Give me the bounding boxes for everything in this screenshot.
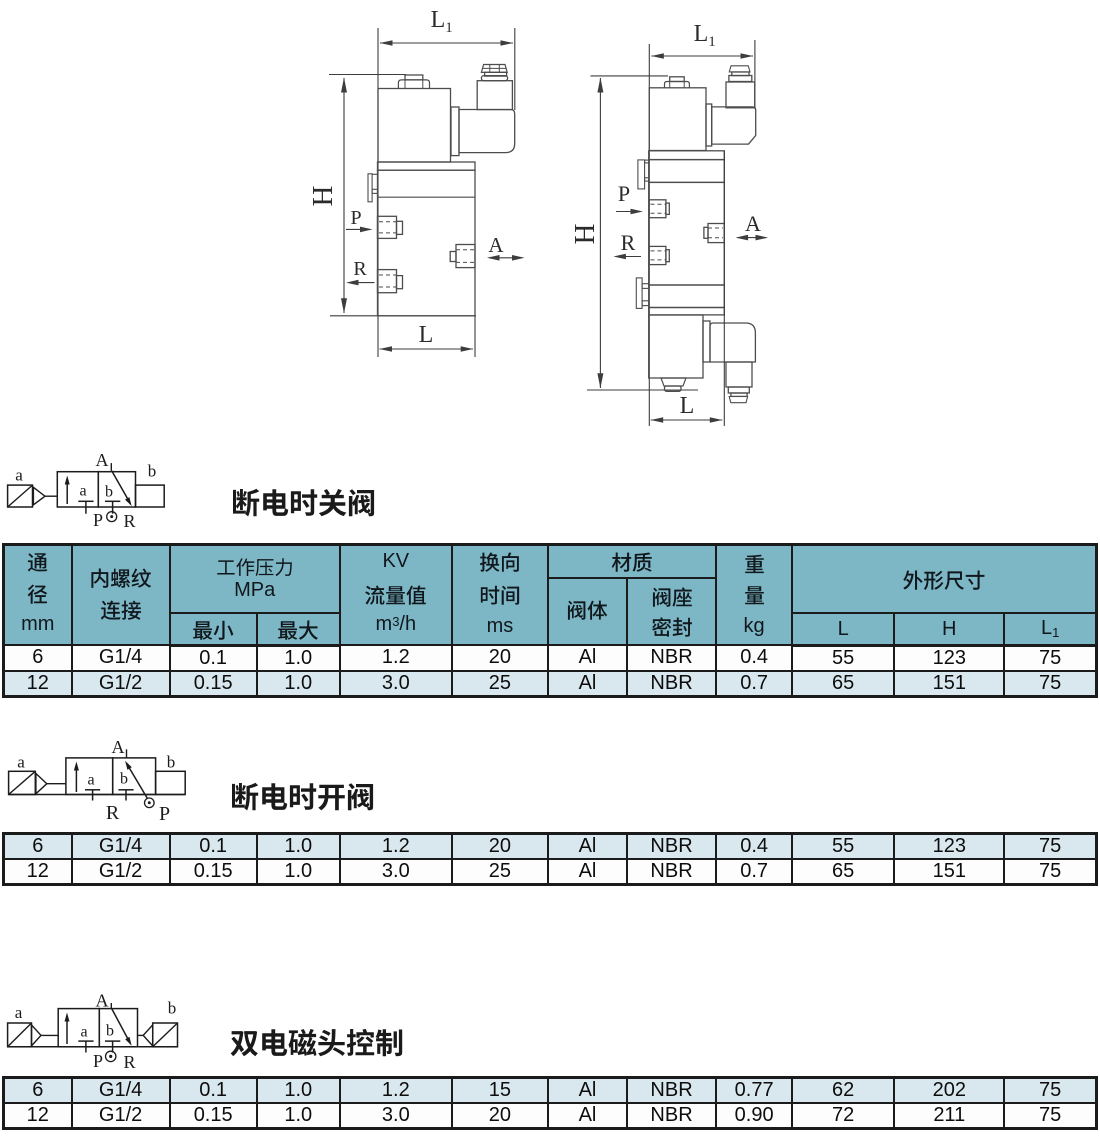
svg-text:A: A (96, 991, 109, 1011)
svg-text:P: P (159, 803, 170, 825)
svg-text:H: H (569, 223, 601, 244)
svg-text:b: b (168, 998, 177, 1017)
svg-text:a: a (80, 1023, 87, 1040)
svg-text:L: L (431, 7, 446, 33)
svg-text:a: a (15, 465, 23, 484)
svg-text:L: L (694, 21, 709, 47)
svg-text:A: A (112, 737, 125, 757)
svg-text:b: b (167, 753, 176, 772)
svg-text:a: a (87, 772, 94, 789)
svg-text:H: H (307, 185, 339, 206)
svg-text:R: R (621, 230, 636, 255)
svg-text:b: b (148, 462, 157, 481)
svg-text:R: R (123, 1052, 135, 1072)
svg-text:a: a (15, 1003, 23, 1022)
svg-text:L: L (680, 393, 695, 419)
svg-text:R: R (123, 511, 135, 531)
svg-text:A: A (745, 211, 761, 236)
svg-text:R: R (353, 258, 367, 280)
svg-text:A: A (96, 450, 109, 470)
svg-text:P: P (93, 510, 103, 530)
svg-text:a: a (79, 483, 86, 500)
svg-text:b: b (120, 771, 128, 788)
svg-text:P: P (350, 207, 361, 229)
svg-text:R: R (106, 802, 120, 824)
svg-text:A: A (488, 233, 504, 257)
svg-text:P: P (93, 1051, 103, 1071)
svg-text:1: 1 (445, 20, 453, 36)
svg-text:L: L (419, 322, 434, 348)
svg-text:1: 1 (708, 34, 716, 50)
svg-text:b: b (106, 1022, 114, 1039)
svg-text:a: a (17, 753, 25, 772)
svg-text:b: b (105, 484, 113, 501)
svg-text:P: P (618, 181, 630, 206)
